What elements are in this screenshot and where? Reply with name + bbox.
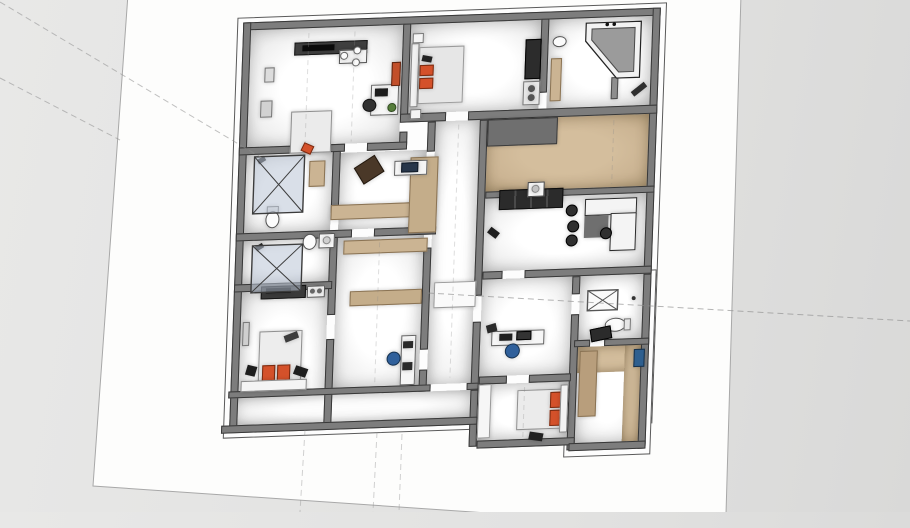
desk-3-item-1[interactable] bbox=[403, 341, 413, 348]
wall-bath4-bed5-a[interactable] bbox=[574, 340, 590, 348]
wardrobe-white[interactable] bbox=[477, 384, 492, 438]
bath-cabinet-2[interactable] bbox=[309, 160, 326, 187]
bed-5-blue[interactable] bbox=[633, 349, 645, 367]
wall-mass-utility[interactable] bbox=[487, 117, 558, 147]
wall-picture-3[interactable] bbox=[242, 322, 250, 346]
wall-picture-2[interactable] bbox=[260, 100, 273, 117]
nightstand-2[interactable] bbox=[410, 109, 421, 119]
tv-screen-2[interactable] bbox=[266, 287, 291, 293]
counter-tan-h[interactable] bbox=[330, 202, 417, 220]
wardrobe-dark[interactable] bbox=[524, 39, 541, 80]
sideboard-tan[interactable] bbox=[349, 289, 422, 307]
desk-3-item-2[interactable] bbox=[402, 362, 412, 370]
wall-hall-left-a[interactable] bbox=[427, 121, 436, 151]
bar-counter-side[interactable] bbox=[609, 212, 636, 251]
hall-cabinet[interactable] bbox=[433, 281, 476, 309]
wall-bed1-bottom-b[interactable] bbox=[367, 141, 407, 150]
wall-picture-1[interactable] bbox=[264, 67, 275, 82]
desk-4-keyboard[interactable] bbox=[499, 333, 512, 340]
wardrobe-tan[interactable] bbox=[578, 350, 598, 417]
wall-office2-bath4-a[interactable] bbox=[572, 276, 581, 294]
desk-2-laptop[interactable] bbox=[401, 162, 418, 173]
armchair-orange[interactable] bbox=[391, 62, 401, 86]
bed-2-pillow-1[interactable] bbox=[419, 65, 433, 77]
partition-wall[interactable] bbox=[611, 77, 619, 99]
model-viewport[interactable] bbox=[0, 0, 910, 512]
bathroom-cabinet-tan[interactable] bbox=[550, 58, 563, 101]
bed-4-item[interactable] bbox=[528, 432, 543, 442]
wall-office2-bed4-b[interactable] bbox=[529, 373, 571, 383]
wall-office2-bed4-a[interactable] bbox=[479, 376, 507, 385]
nightstand-1[interactable] bbox=[413, 33, 424, 43]
wall-kitchen-bottom-a[interactable] bbox=[482, 271, 502, 280]
toilet-3-tank[interactable] bbox=[624, 318, 631, 330]
tv-screen[interactable] bbox=[302, 44, 334, 51]
bed-2-pillow-2[interactable] bbox=[419, 78, 433, 90]
desk-4-screen[interactable] bbox=[516, 331, 531, 341]
wall-bed2-bottom-a[interactable] bbox=[400, 112, 446, 123]
floor-plan-model[interactable] bbox=[0, 0, 910, 528]
desk-1-laptop[interactable] bbox=[375, 88, 388, 96]
room-bathroom-3[interactable] bbox=[242, 238, 330, 284]
bed-4-headboard[interactable] bbox=[559, 384, 569, 432]
